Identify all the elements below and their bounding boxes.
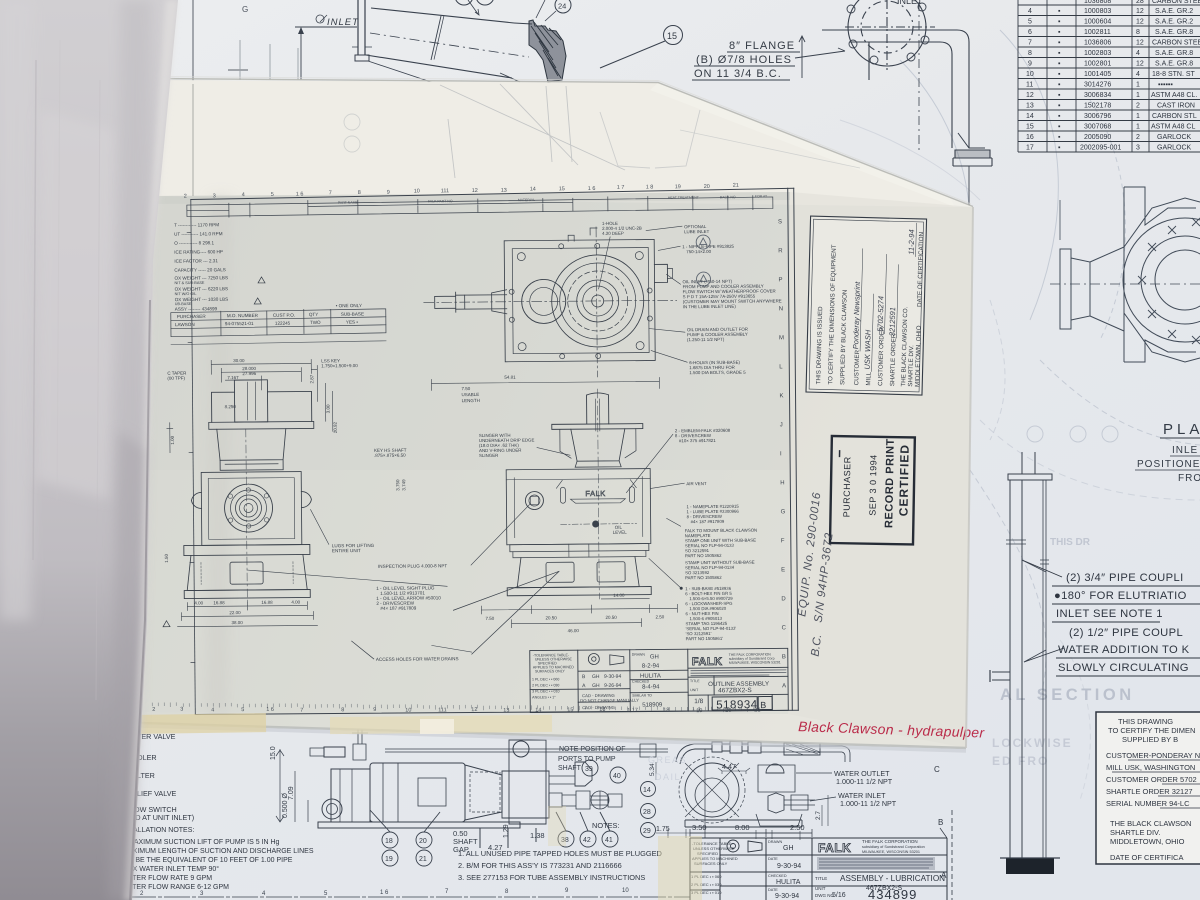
svg-text:2.87: 2.87	[309, 374, 314, 383]
svg-text:UNIT: UNIT	[815, 886, 826, 891]
svg-text:SLINGER: SLINGER	[479, 453, 498, 458]
svg-text:CAD - DRAWING: CAD - DRAWING	[582, 705, 615, 710]
svg-text:O ------------ 8 298.1: O ------------ 8 298.1	[174, 240, 214, 245]
svg-text:AIR VENT: AIR VENT	[686, 481, 707, 486]
svg-text:DRAWN: DRAWN	[632, 653, 646, 657]
svg-text:9: 9	[373, 707, 376, 713]
svg-text:1: 1	[1136, 124, 1140, 131]
svg-text:8-4-94: 8-4-94	[642, 684, 660, 690]
svg-text:THE FALK CORPORATION: THE FALK CORPORATION	[862, 839, 918, 844]
svg-text:(2) 3/4″ PIPE COUPLI: (2) 3/4″ PIPE COUPLI	[1066, 572, 1184, 584]
svg-text:SUPPLIED BY B: SUPPLIED BY B	[1122, 735, 1178, 744]
svg-text:1036808: 1036808	[1084, 0, 1111, 5]
svg-text:15.0: 15.0	[270, 746, 277, 760]
svg-text:• ONE ONLY: • ONE ONLY	[336, 303, 362, 308]
svg-text:GH: GH	[592, 683, 600, 689]
svg-text:16.88: 16.88	[261, 600, 273, 605]
svg-text:19: 19	[675, 184, 681, 190]
svg-text:POSITIONE: POSITIONE	[1137, 459, 1200, 470]
svg-text:UB-BASE: UB-BASE	[175, 302, 192, 306]
svg-text:8: 8	[1028, 50, 1032, 57]
svg-text:9: 9	[1028, 61, 1032, 68]
svg-text:18-8 STN. ST: 18-8 STN. ST	[1152, 71, 1196, 78]
svg-text:PART NAME: PART NAME	[338, 201, 359, 205]
svg-text:P: P	[779, 277, 783, 283]
svg-text:2005090: 2005090	[1084, 134, 1111, 141]
svg-text:OX WEIGHT --- 7250 LBS: OX WEIGHT --- 7250 LBS	[174, 275, 228, 280]
svg-text:MAXIMUM SUCTION LIFT OF PUMP I: MAXIMUM SUCTION LIFT OF PUMP IS 5 IN Hg	[128, 839, 280, 846]
svg-text:HEAT TREATMENT: HEAT TREATMENT	[668, 196, 700, 200]
svg-text:SLOWLY CIRCULATING: SLOWLY CIRCULATING	[1058, 662, 1189, 674]
svg-text:8: 8	[1136, 29, 1140, 36]
svg-text:7.167: 7.167	[227, 375, 239, 380]
svg-text:PURCHASER: PURCHASER	[841, 456, 852, 517]
svg-text:5: 5	[271, 192, 274, 198]
svg-text:1000604: 1000604	[1084, 19, 1111, 26]
svg-text:IN THE LUBE INLET LINE): IN THE LUBE INLET LINE)	[683, 304, 737, 309]
svg-text:NIT & SUB-BASE: NIT & SUB-BASE	[175, 281, 205, 285]
svg-text:D: D	[781, 596, 786, 602]
svg-text:R: R	[778, 248, 783, 254]
svg-text:1.000-11 1/2 NPT: 1.000-11 1/2 NPT	[840, 799, 897, 808]
svg-text:ACCESS HOLES FOR WATER DRAINS: ACCESS HOLES FOR WATER DRAINS	[376, 656, 459, 662]
svg-text:LENGTH: LENGTH	[462, 398, 480, 403]
svg-text:16.88: 16.88	[213, 600, 225, 605]
svg-text:TITLE: TITLE	[690, 679, 700, 683]
svg-text:S: S	[778, 219, 782, 225]
svg-text:(1.250-11 1/2 NPT): (1.250-11 1/2 NPT)	[687, 337, 725, 342]
svg-text:WATER ADDITION TO K: WATER ADDITION TO K	[1058, 644, 1190, 656]
svg-text:54.81: 54.81	[504, 375, 516, 380]
svg-text:5: 5	[241, 707, 244, 713]
svg-text:FALK: FALK	[818, 841, 851, 855]
svg-text:27.996: 27.996	[242, 371, 256, 376]
svg-text:#4× 187 #917809: #4× 187 #917809	[380, 606, 416, 611]
svg-text:SIMILAR TO: SIMILAR TO	[632, 694, 652, 698]
svg-text:12: 12	[1026, 92, 1034, 99]
svg-text:3 PL DEC • ▪ 010: 3 PL DEC • ▪ 010	[532, 689, 559, 693]
svg-text:20.92: 20.92	[333, 421, 338, 433]
svg-text:NOTES:: NOTES:	[592, 821, 620, 830]
svg-text:GH: GH	[650, 654, 659, 660]
svg-text:S.A.E. GR.2: S.A.E. GR.2	[1155, 8, 1193, 15]
svg-text:5: 5	[1028, 19, 1032, 26]
svg-text:PART NO 1505862: PART NO 1505862	[685, 575, 722, 580]
svg-text:28: 28	[643, 809, 651, 816]
svg-text:CARBON STEEL: CARBON STEEL	[1152, 40, 1200, 47]
svg-text:USK WASH: USK WASH	[863, 329, 873, 370]
svg-text:INLE: INLE	[1172, 445, 1198, 456]
svg-text:1.38: 1.38	[530, 831, 545, 840]
svg-text:3: 3	[1136, 145, 1140, 152]
svg-text:14: 14	[1026, 113, 1034, 120]
svg-text:3: 3	[180, 707, 183, 713]
svg-text:ATER FLOW RATE 9 GPM: ATER FLOW RATE 9 GPM	[128, 875, 212, 882]
svg-text:2: 2	[184, 194, 187, 200]
svg-text:PART NO 1505861': PART NO 1505861'	[686, 636, 724, 641]
svg-text:1 . 1: 1 . 1	[692, 706, 701, 711]
svg-text:RECORD PRINT: RECORD PRINT	[883, 438, 897, 528]
svg-text:LAWSON: LAWSON	[175, 322, 195, 327]
svg-text:(00 TPF): (00 TPF)	[167, 376, 185, 381]
svg-text:8″ FLANGE: 8″ FLANGE	[729, 40, 795, 52]
svg-text:F: F	[781, 538, 785, 544]
svg-text:2. B/M FOR THIS ASS'Y IS 77323: 2. B/M FOR THIS ASS'Y IS 773231 AND 2116…	[458, 861, 622, 870]
svg-text:1: 1	[1136, 82, 1140, 89]
svg-text:1. ALL UNUSED PIPE TAPPED HOLE: 1. ALL UNUSED PIPE TAPPED HOLES MUST BE …	[458, 849, 662, 858]
svg-text:SEP 3 0 1994: SEP 3 0 1994	[867, 454, 878, 516]
svg-text:1 6: 1 6	[296, 192, 304, 198]
svg-text:3006796: 3006796	[1084, 113, 1111, 120]
svg-text:UT ----------- 141.0 RPM: UT ----------- 141.0 RPM	[174, 231, 223, 236]
svg-text:MILL: MILL	[865, 371, 872, 385]
svg-text:LEVEL: LEVEL	[613, 530, 628, 535]
svg-text:1 6: 1 6	[380, 890, 389, 896]
svg-text:CUSTOMER: CUSTOMER	[853, 349, 861, 385]
svg-text:#10× 375 #917821: #10× 375 #917821	[679, 438, 716, 443]
svg-text:4: 4	[1136, 50, 1140, 57]
svg-text:OX WEIGHT --- 6220 LBS: OX WEIGHT --- 6220 LBS	[175, 286, 229, 291]
svg-text:8: 8	[341, 707, 344, 713]
svg-text:FALK PART NO: FALK PART NO	[428, 199, 453, 203]
svg-text:TWO: TWO	[310, 320, 321, 325]
svg-text:9-30-94: 9-30-94	[777, 863, 801, 870]
svg-text:B: B	[938, 818, 943, 827]
svg-text:ASTM A48 CL: ASTM A48 CL	[1151, 124, 1195, 131]
svg-text:SHARTLE ORDER: SHARTLE ORDER	[889, 333, 897, 386]
svg-text:FALK: FALK	[585, 489, 605, 498]
svg-text:B: B	[782, 654, 786, 660]
svg-text:subsidiary of Sundstrand Corpo: subsidiary of Sundstrand Corporation	[862, 845, 925, 849]
svg-text:1.29: 1.29	[503, 824, 510, 838]
svg-text:28: 28	[1136, 0, 1144, 5]
svg-text:HULITA: HULITA	[776, 879, 801, 886]
svg-text:5/16: 5/16	[832, 892, 846, 899]
svg-text:S.A.E. GR.8: S.A.E. GR.8	[1155, 29, 1193, 36]
svg-text:TITLE: TITLE	[815, 876, 827, 881]
svg-text:13: 13	[1026, 103, 1034, 110]
svg-text:7.50: 7.50	[461, 386, 470, 391]
svg-text:1 8: 1 8	[646, 184, 654, 190]
svg-text:GH: GH	[783, 845, 794, 852]
svg-text:ENTIRE UNIT: ENTIRE UNIT	[332, 548, 361, 553]
svg-text:3.00: 3.00	[326, 404, 331, 413]
svg-text:13: 13	[503, 708, 509, 714]
svg-text:MILWAUKEE, WISCONSIN 53201: MILWAUKEE, WISCONSIN 53201	[729, 660, 781, 664]
svg-text:C: C	[934, 765, 940, 774]
svg-text:14.00: 14.00	[613, 593, 625, 598]
svg-text:PLA: PLA	[1163, 421, 1200, 438]
svg-text:YES •: YES •	[346, 320, 359, 325]
svg-text:29: 29	[643, 828, 651, 835]
svg-text:3: 3	[213, 193, 216, 199]
svg-text:2.7: 2.7	[815, 811, 822, 820]
svg-text:18: 18	[385, 838, 393, 845]
svg-text:QTY: QTY	[309, 312, 318, 317]
svg-text:PORTS TO PUMP: PORTS TO PUMP	[558, 756, 616, 763]
svg-text:20.50: 20.50	[605, 615, 617, 620]
svg-text:GREAS: GREAS	[648, 755, 687, 765]
svg-text:K: K	[780, 393, 784, 399]
svg-text:17: 17	[1026, 145, 1034, 152]
svg-text:2: 2	[1136, 134, 1140, 141]
svg-text:1.500 DIA BOLTS, GRADE 5: 1.500 DIA BOLTS, GRADE 5	[689, 370, 746, 375]
svg-text:CHECKED: CHECKED	[632, 680, 650, 684]
svg-text:20: 20	[704, 184, 710, 190]
svg-text:21: 21	[733, 183, 739, 189]
svg-text:1 6: 1 6	[266, 707, 274, 713]
svg-text:1.75: 1.75	[656, 826, 670, 833]
svg-text:CARBON STEEL: CARBON STEEL	[1152, 0, 1200, 5]
svg-text:PURCHASER: PURCHASER	[177, 314, 207, 319]
svg-text:22.00: 22.00	[229, 610, 241, 615]
svg-text:E: E	[781, 567, 785, 573]
svg-text:7: 7	[329, 190, 332, 196]
svg-text:(2) 1/2″ PIPE COUPL: (2) 1/2″ PIPE COUPL	[1069, 627, 1183, 639]
svg-text:A: A	[782, 683, 786, 689]
svg-text:DRAWN: DRAWN	[768, 840, 782, 844]
svg-text:1036806: 1036806	[1084, 40, 1111, 47]
svg-text:111: 111	[438, 707, 446, 713]
svg-text:NIT W/O OIL: NIT W/O OIL	[175, 292, 197, 296]
svg-text:CAST IRON: CAST IRON	[1157, 103, 1195, 110]
svg-text:DATE: DATE	[768, 857, 778, 861]
svg-text:G: G	[242, 5, 248, 14]
svg-text:11-2-94: 11-2-94	[907, 229, 917, 255]
svg-text:SHARTLE ORDER 32127: SHARTLE ORDER 32127	[1106, 787, 1193, 796]
svg-text:14: 14	[643, 787, 651, 794]
svg-text:42: 42	[583, 837, 591, 844]
svg-text:111: 111	[441, 188, 449, 194]
svg-text:7.50: 7.50	[485, 616, 494, 621]
svg-text:30.00: 30.00	[233, 358, 245, 363]
svg-text:2.50: 2.50	[790, 823, 805, 832]
svg-text:4.00: 4.00	[194, 600, 203, 605]
svg-text:3.750: 3.750	[395, 479, 400, 491]
svg-text:FALK: FALK	[692, 656, 723, 668]
svg-text:2: 2	[152, 707, 155, 713]
svg-text:SHARTLE DIV.: SHARTLE DIV.	[1110, 828, 1160, 837]
svg-text:1001405: 1001405	[1084, 71, 1111, 78]
svg-text:ALLATION NOTES:: ALLATION NOTES:	[133, 827, 194, 834]
svg-text:LTER: LTER	[137, 771, 155, 780]
svg-text:21: 21	[419, 856, 427, 863]
svg-text:14: 14	[530, 187, 536, 193]
svg-text:LUBE INLET: LUBE INLET	[684, 229, 709, 234]
svg-text:12: 12	[1136, 40, 1144, 47]
svg-text:AL SECTION: AL SECTION	[1000, 686, 1135, 704]
svg-text:3006834: 3006834	[1084, 92, 1111, 99]
svg-text:S.A.E. GR.8: S.A.E. GR.8	[1155, 50, 1193, 57]
svg-text:THIS DRAWING: THIS DRAWING	[1118, 717, 1173, 726]
svg-text:(B) Ø7/8 HOLES: (B) Ø7/8 HOLES	[696, 54, 792, 66]
svg-text:2: 2	[1136, 103, 1140, 110]
svg-text:15: 15	[559, 186, 565, 192]
svg-text:CUSTOMER ORDER 5702: CUSTOMER ORDER 5702	[1106, 775, 1197, 784]
svg-text:LOCKWISE: LOCKWISE	[992, 736, 1073, 750]
svg-text:1502178: 1502178	[1084, 103, 1111, 110]
svg-text:4.47: 4.47	[722, 762, 736, 771]
svg-text:MILL USK, WASHINGTON: MILL USK, WASHINGTON	[1106, 763, 1195, 772]
svg-text:15: 15	[1026, 124, 1034, 131]
svg-text:THIS DR: THIS DR	[1050, 537, 1091, 548]
svg-text:0.500 Ø: 0.500 Ø	[282, 793, 289, 818]
svg-text:8-2-94: 8-2-94	[642, 663, 660, 669]
svg-text:BACK NO: BACK NO	[720, 195, 736, 199]
svg-text:9-26-94: 9-26-94	[604, 683, 622, 689]
svg-text:1 6: 1 6	[588, 186, 596, 192]
svg-text:40: 40	[613, 773, 621, 780]
svg-text:4: 4	[1136, 71, 1140, 78]
svg-text:MATERIAL: MATERIAL	[518, 198, 535, 202]
svg-text:13: 13	[501, 188, 507, 194]
svg-text:24: 24	[558, 2, 566, 11]
svg-text:1: 1	[1136, 92, 1140, 99]
svg-text:ICE RATING---- 600 HP: ICE RATING---- 600 HP	[174, 249, 223, 254]
svg-text:MIDDLETOWN, OHIO: MIDDLETOWN, OHIO	[1110, 837, 1185, 846]
svg-text:CUST P.O.: CUST P.O.	[273, 313, 295, 318]
svg-text:12: 12	[1136, 19, 1144, 26]
svg-text:8: 8	[358, 190, 361, 196]
svg-text:C: C	[782, 625, 787, 631]
svg-text:O BE THE EQUIVALENT OF 10 FEET: O BE THE EQUIVALENT OF 10 FEET OF 1.00 P…	[128, 857, 293, 864]
svg-text:3007068: 3007068	[1084, 124, 1111, 131]
svg-text:TO CERTIFY THE DIMEN: TO CERTIFY THE DIMEN	[1108, 726, 1195, 735]
svg-text:467ZBX2-S: 467ZBX2-S	[718, 687, 752, 694]
svg-text:4: 4	[211, 707, 214, 713]
svg-text:19: 19	[385, 856, 393, 863]
svg-text:T ------------ 1170 RPM: T ------------ 1170 RPM	[174, 222, 219, 227]
svg-text:1/8: 1/8	[694, 698, 703, 705]
svg-text:DO NOT CHANGE MANUALLY: DO NOT CHANGE MANUALLY	[580, 698, 639, 704]
svg-text:3212591: 3212591	[887, 307, 897, 336]
svg-text:10: 10	[1026, 71, 1034, 78]
svg-text:DATE OF CERTIFICA: DATE OF CERTIFICA	[1110, 853, 1183, 862]
svg-text:ICE FACTOR --- 2.31: ICE FACTOR --- 2.31	[174, 258, 218, 263]
svg-text:SUB-BASE: SUB-BASE	[341, 312, 364, 317]
svg-text:1002803: 1002803	[1084, 50, 1111, 57]
svg-text:4.00: 4.00	[291, 600, 300, 605]
svg-text:USABLE: USABLE	[461, 392, 479, 397]
svg-text:8.00: 8.00	[735, 823, 750, 832]
svg-text:38.00: 38.00	[231, 620, 243, 625]
svg-text:9-30-94: 9-30-94	[775, 893, 799, 900]
svg-text:12: 12	[472, 188, 478, 194]
svg-text:122245: 122245	[275, 321, 291, 326]
svg-text:10: 10	[414, 189, 420, 195]
svg-text:1002801: 1002801	[1084, 61, 1111, 68]
svg-text:434899: 434899	[868, 887, 917, 900]
svg-text:FOR AT: FOR AT	[755, 194, 768, 198]
svg-text:GH: GH	[592, 674, 600, 680]
svg-text:9: 9	[387, 190, 390, 196]
svg-text:1 7: 1 7	[617, 185, 625, 191]
svg-text:1002811: 1002811	[1084, 29, 1111, 36]
svg-text:12: 12	[471, 707, 477, 713]
svg-text:3.749: 3.749	[401, 479, 406, 491]
svg-text:10: 10	[622, 888, 629, 894]
svg-text:FROM: FROM	[1178, 473, 1200, 484]
svg-text:20.50: 20.50	[545, 615, 557, 620]
svg-text:INSPECTION PLUG 4.000-8 NPT: INSPECTION PLUG 4.000-8 NPT	[378, 563, 447, 569]
svg-text:N: N	[779, 306, 783, 312]
svg-text:THE BLACK CLAWSON: THE BLACK CLAWSON	[1110, 819, 1191, 828]
svg-text:CERTIFIED: CERTIFIED	[896, 444, 911, 517]
svg-text:16: 16	[1026, 134, 1034, 141]
svg-text:12: 12	[1136, 61, 1144, 68]
svg-text:11: 11	[1026, 82, 1033, 89]
svg-text:15: 15	[667, 31, 677, 41]
svg-text:A: A	[941, 871, 947, 880]
svg-text:AXIMUM LENGTH OF SUCTION AND D: AXIMUM LENGTH OF SUCTION AND DISCHARGE L…	[128, 848, 314, 855]
svg-text:518909: 518909	[642, 702, 663, 708]
svg-text:MILWAUKEE, WISCONSIN 53201: MILWAUKEE, WISCONSIN 53201	[862, 850, 920, 854]
svg-text:DATE: DATE	[768, 888, 778, 892]
svg-text:ATER FLOW RANGE 6-12 GPM: ATER FLOW RANGE 6-12 GPM	[128, 884, 229, 891]
svg-text:1.750=1.500+9.00: 1.750=1.500+9.00	[321, 363, 358, 368]
svg-text:ED FRO: ED FRO	[992, 754, 1049, 768]
svg-text:LIEF VALVE: LIEF VALVE	[137, 789, 176, 798]
svg-text:1.000-11 1/2 NPT: 1.000-11 1/2 NPT	[836, 777, 893, 786]
svg-text:#4× 187 #917809: #4× 187 #917809	[691, 519, 725, 524]
svg-text:750-14×2.00: 750-14×2.00	[686, 249, 711, 254]
svg-text:TD AT UNIT INLET): TD AT UNIT INLET)	[131, 813, 194, 822]
svg-text:ASSEMBLY - LUBRICATION: ASSEMBLY - LUBRICATION	[840, 874, 945, 883]
svg-text:▪▪▪▪▪▪: ▪▪▪▪▪▪	[1158, 82, 1173, 89]
svg-text:SURFACES ONLY: SURFACES ONLY	[535, 669, 566, 673]
svg-text:H: H	[780, 480, 784, 486]
svg-text:7.09: 7.09	[288, 786, 295, 800]
svg-text:ANGLES • ▪ 1°: ANGLES • ▪ 1°	[532, 695, 556, 699]
svg-text:2002095-001: 2002095-001	[1080, 145, 1121, 152]
svg-text:1000803: 1000803	[1084, 8, 1111, 15]
svg-text:1 17: 1 17	[627, 708, 638, 714]
svg-text:GARLOCK: GARLOCK	[1157, 145, 1192, 152]
svg-text:46.00: 46.00	[568, 628, 580, 633]
svg-text:M.O. NUMBER: M.O. NUMBER	[227, 313, 259, 318]
svg-text:94-075521-01: 94-075521-01	[225, 321, 254, 326]
svg-text:5702-5274: 5702-5274	[876, 296, 886, 332]
svg-text:20: 20	[419, 838, 427, 845]
svg-text:●180° FOR ELUTRIATIO: ●180° FOR ELUTRIATIO	[1054, 590, 1187, 602]
svg-text:9-30-94: 9-30-94	[604, 674, 622, 680]
svg-text:.875×.875×6.50: .875×.875×6.50	[374, 453, 406, 458]
svg-text:PART NO 1505862: PART NO 1505862	[685, 553, 722, 558]
svg-text:CHECKED: CHECKED	[768, 874, 787, 878]
svg-text:4: 4	[242, 192, 245, 198]
svg-text:18: 18	[663, 707, 669, 713]
svg-text:SHAFT: SHAFT	[558, 765, 582, 772]
svg-text:DAIL: DAIL	[655, 772, 681, 782]
svg-text:41: 41	[605, 837, 613, 844]
svg-text:4: 4	[1028, 8, 1032, 15]
svg-text:UNIT: UNIT	[690, 688, 699, 692]
svg-text:10: 10	[405, 708, 411, 714]
svg-text:3.50: 3.50	[692, 823, 707, 832]
svg-text:2.50: 2.50	[655, 614, 664, 619]
svg-text:J: J	[780, 422, 783, 428]
svg-text:G: G	[781, 509, 786, 515]
svg-text:NOTE POSITION OF: NOTE POSITION OF	[559, 746, 626, 753]
svg-text:7: 7	[1028, 40, 1032, 47]
svg-text:3014276: 3014276	[1084, 82, 1111, 89]
svg-text:AX WATER INLET TEMP 90°: AX WATER INLET TEMP 90°	[128, 865, 219, 873]
svg-text:GARLOCK: GARLOCK	[1157, 134, 1192, 141]
svg-text:2 PL DEC • ▪ 030: 2 PL DEC • ▪ 030	[532, 683, 559, 687]
svg-text:ON 11 3/4 B.C.: ON 11 3/4 B.C.	[694, 68, 782, 80]
svg-text:1.00: 1.00	[170, 435, 175, 444]
svg-text:3. SEE 277153 FOR TUBE ASSEMBL: 3. SEE 277153 FOR TUBE ASSEMBLY INSTRUCT…	[458, 873, 645, 882]
